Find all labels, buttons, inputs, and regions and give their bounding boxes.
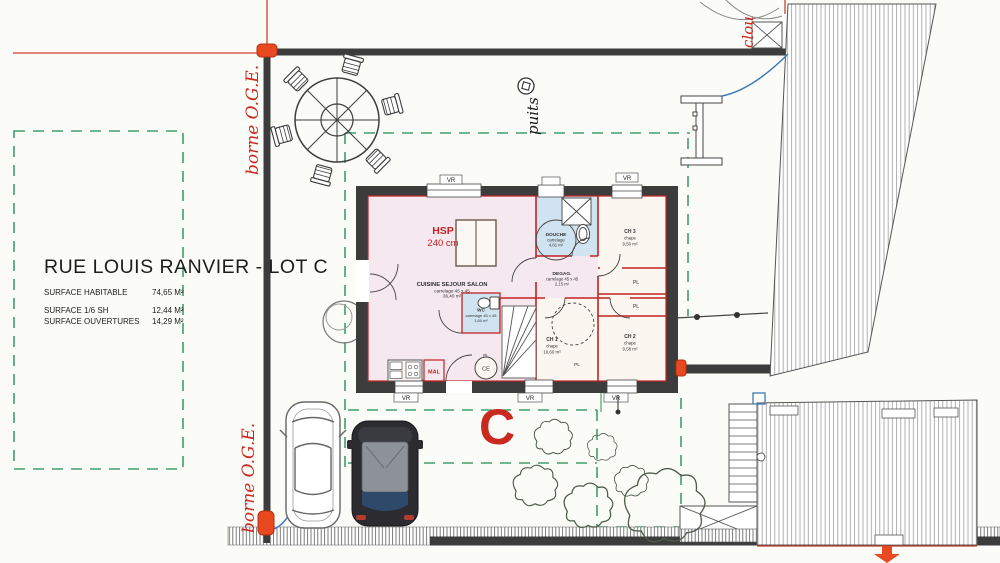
svg-text:9,50 m²: 9,50 m² — [623, 242, 638, 247]
surface-row-value: 12,44 M² — [152, 306, 184, 315]
svg-text:1,60 m²: 1,60 m² — [474, 318, 488, 323]
closet-label: PL — [633, 280, 639, 286]
svg-text:chape: chape — [624, 236, 637, 241]
borne-oge-label-top: borne O.G.E. — [243, 65, 263, 175]
svg-text:CE: CE — [482, 367, 490, 373]
clou-label: clou — [739, 16, 757, 48]
car-top-view-white — [280, 402, 346, 528]
surface-row-label: SURFACE 1/6 SH — [44, 306, 109, 315]
washing-machine-label: MAL — [428, 370, 441, 376]
svg-text:2,15 m²: 2,15 m² — [555, 282, 570, 287]
svg-text:chape: chape — [546, 344, 559, 349]
well-icon — [518, 78, 534, 94]
site-plan-drawing: puits — [0, 0, 1000, 563]
boundary-marker-icon — [257, 44, 277, 57]
car-top-view-dark — [347, 421, 423, 526]
neighbour-building-south — [757, 400, 977, 546]
svg-text:10,60 m²: 10,60 m² — [543, 350, 561, 355]
closet-label: PL — [574, 362, 580, 368]
stairs — [502, 306, 536, 378]
room-label-ch3: CH 3 — [624, 229, 636, 235]
well-label: puits — [524, 97, 542, 135]
shutter-label: VR — [623, 176, 632, 182]
shutter-label: VR — [612, 396, 621, 402]
ceiling-height-value: 240 cm — [427, 238, 458, 249]
svg-text:chape: chape — [624, 341, 637, 346]
crossed-slab — [680, 506, 757, 542]
ceiling-height-label: HSP — [432, 225, 454, 237]
boundary-marker-icon — [676, 360, 686, 376]
svg-text:9,58 m²: 9,58 m² — [623, 347, 638, 352]
house-floorplan: VR VR VR VR VR — [355, 173, 678, 415]
shutter-label: VR — [402, 396, 411, 402]
room-label-salon: CUISINE SEJOUR SALON — [417, 282, 488, 288]
borne-oge-label-bottom: borne O.G.E. — [239, 423, 259, 533]
svg-text:4,81 m²: 4,81 m² — [549, 243, 564, 248]
lot-letter: C — [479, 399, 515, 455]
closet-label: PL — [633, 304, 639, 310]
boundary-marker-icon — [258, 511, 274, 535]
surface-row-value: 74,65 M² — [152, 288, 184, 297]
surface-row-label: SURFACE OUVERTURES — [44, 317, 139, 326]
dining-table-icon — [456, 220, 496, 266]
room-area-salon: 36,40 m² — [443, 294, 462, 299]
shutter-label: VR — [526, 396, 535, 402]
surface-row-label: SURFACE HABITABLE — [44, 288, 127, 297]
room-label-ch2: CH 2 — [624, 334, 636, 340]
shutter-label: VR — [447, 178, 456, 184]
room-label-wc: WC — [477, 308, 485, 313]
site-plan-scan: puits — [0, 0, 1000, 563]
room-label-ch1: CH 1 — [546, 337, 558, 343]
surface-row-value: 14,29 M² — [152, 317, 184, 326]
plan-title: RUE LOUIS RANVIER - LOT C — [44, 256, 328, 278]
